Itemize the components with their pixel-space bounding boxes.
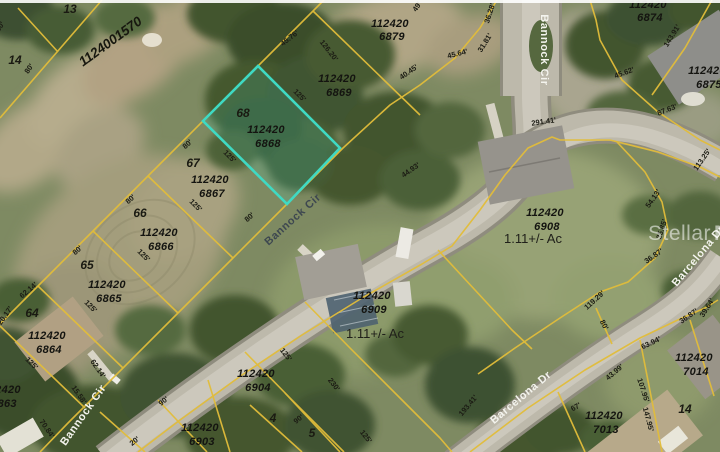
lot-number: 65: [80, 258, 94, 272]
apn-line2: 7013: [593, 424, 619, 436]
map-canvas: 80' 80' 45.76' 126.20' 40.45' 45.64' 31.…: [0, 0, 720, 452]
watermark-part2: MLS: [714, 222, 720, 245]
apn-line2: 6868: [255, 138, 281, 150]
acreage-label: 1.11+/- Ac: [346, 326, 404, 341]
acreage-label: 1.11+/- Ac: [504, 231, 562, 246]
terrain-base: [0, 0, 720, 452]
apn-line1: 112420: [585, 410, 623, 422]
apn-line2: 7014: [683, 366, 709, 378]
lot-number: 14: [8, 53, 22, 67]
lot-number: 67: [186, 156, 201, 170]
apn-line1: 112420: [353, 290, 391, 302]
watermark-part1: Stellar: [648, 222, 711, 245]
apn-line2: 6869: [326, 87, 352, 99]
apn-line1: 112420: [237, 368, 275, 380]
apn-line2: 6865: [96, 293, 122, 305]
driveway-pad: [681, 92, 705, 106]
lot-number: 64: [25, 306, 39, 320]
apn-line1: 112420: [181, 422, 219, 434]
apn-line1: 112420: [526, 207, 564, 219]
aerial-parcel-map: 80' 80' 45.76' 126.20' 40.45' 45.64' 31.…: [0, 0, 720, 452]
shed: [393, 281, 412, 307]
apn-line1: 112420: [688, 65, 720, 77]
apn-line1: 112420: [371, 18, 409, 30]
apn-line1: 112420: [88, 279, 126, 291]
apn-line2: 6874: [637, 12, 663, 24]
apn-line2: 6904: [245, 382, 271, 394]
apn-line2: 6864: [36, 344, 62, 356]
apn-line2: 6863: [0, 398, 17, 410]
apn-line1: 112420: [247, 124, 285, 136]
apn-line2: 6875: [696, 79, 720, 91]
lot-number: 14: [678, 402, 692, 416]
stellar-mls-watermark: StellarMLS: [648, 222, 720, 245]
apn-line1: 112420: [140, 227, 178, 239]
lot-number: 68: [236, 106, 250, 120]
apn-line2: 6903: [189, 436, 215, 448]
sand-patch: [142, 33, 162, 47]
apn-line1: 112420: [0, 384, 21, 396]
apn-line2: 6867: [199, 188, 225, 200]
lot-number: 13: [63, 2, 77, 16]
lot-number: 5: [309, 426, 316, 440]
apn-line2: 6909: [361, 304, 387, 316]
apn-line1: 112420: [318, 73, 356, 85]
lot-number: 4: [269, 411, 277, 425]
lot-number: 66: [133, 206, 147, 220]
image-edge: [0, 0, 720, 3]
apn-line2: 6879: [379, 31, 405, 43]
apn-line1: 112420: [675, 352, 713, 364]
street-label-bannock-cir: Bannock Cir: [538, 14, 550, 86]
apn-line1: 112420: [28, 330, 66, 342]
apn-line2: 6866: [148, 241, 174, 253]
apn-line1: 112420: [191, 174, 229, 186]
